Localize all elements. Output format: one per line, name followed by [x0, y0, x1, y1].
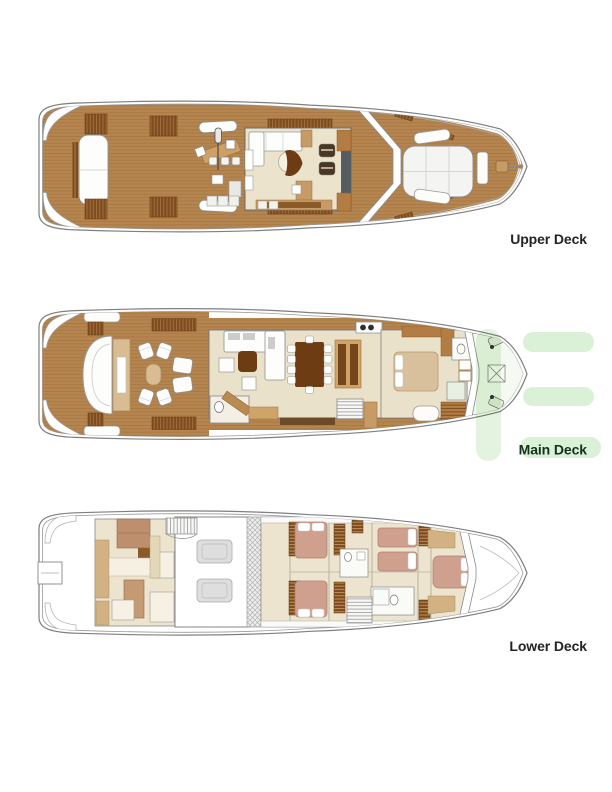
svg-text:Lower Deck: Lower Deck: [509, 638, 587, 654]
svg-text:Main Deck: Main Deck: [519, 442, 588, 458]
svg-text:Upper Deck: Upper Deck: [510, 231, 587, 247]
